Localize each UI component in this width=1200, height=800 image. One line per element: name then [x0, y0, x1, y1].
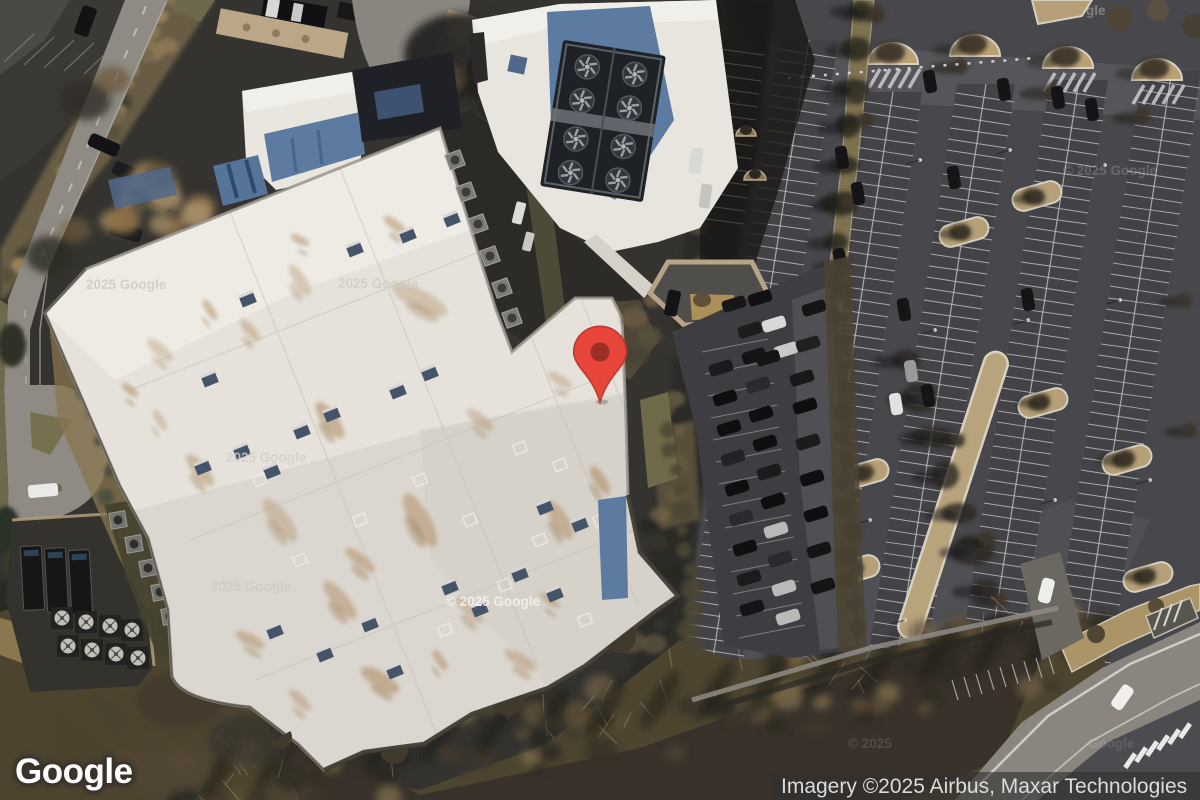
svg-text:gle: gle [1086, 3, 1106, 18]
svg-text:2025 Google: 2025 Google [211, 579, 292, 594]
svg-text:© 2025 Google: © 2025 Google [1063, 163, 1157, 178]
svg-text:2025 Google: 2025 Google [86, 277, 167, 292]
svg-text:Google: Google [1088, 736, 1135, 751]
svg-text:2025 Google: 2025 Google [338, 276, 419, 291]
svg-text:Imagery ©2025 Airbus, Maxar Te: Imagery ©2025 Airbus, Maxar Technologies [781, 775, 1187, 798]
svg-text:© 2025 Google: © 2025 Google [446, 594, 540, 609]
svg-text:Google: Google [15, 752, 133, 791]
svg-text:© 2025: © 2025 [848, 736, 892, 751]
svg-text:2025 Google: 2025 Google [226, 450, 307, 465]
